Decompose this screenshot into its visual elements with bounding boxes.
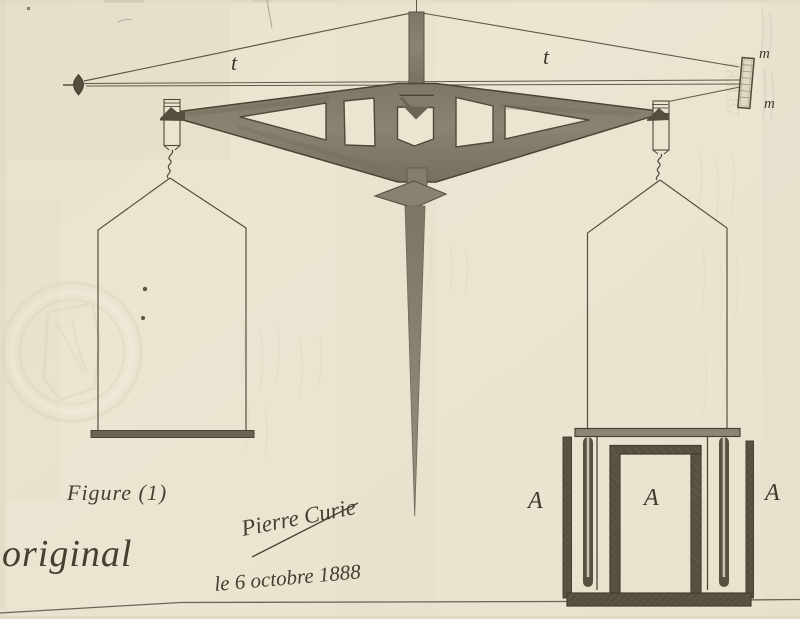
svg-text:original: original (2, 533, 132, 575)
svg-text:Figure (1): Figure (1) (66, 480, 167, 505)
svg-text:t: t (231, 50, 238, 75)
svg-text:A: A (526, 488, 543, 514)
svg-text:A: A (763, 480, 780, 506)
svg-text:m: m (764, 96, 775, 112)
svg-text:t: t (543, 44, 550, 69)
svg-text:A: A (642, 485, 659, 511)
svg-text:m: m (759, 46, 770, 62)
